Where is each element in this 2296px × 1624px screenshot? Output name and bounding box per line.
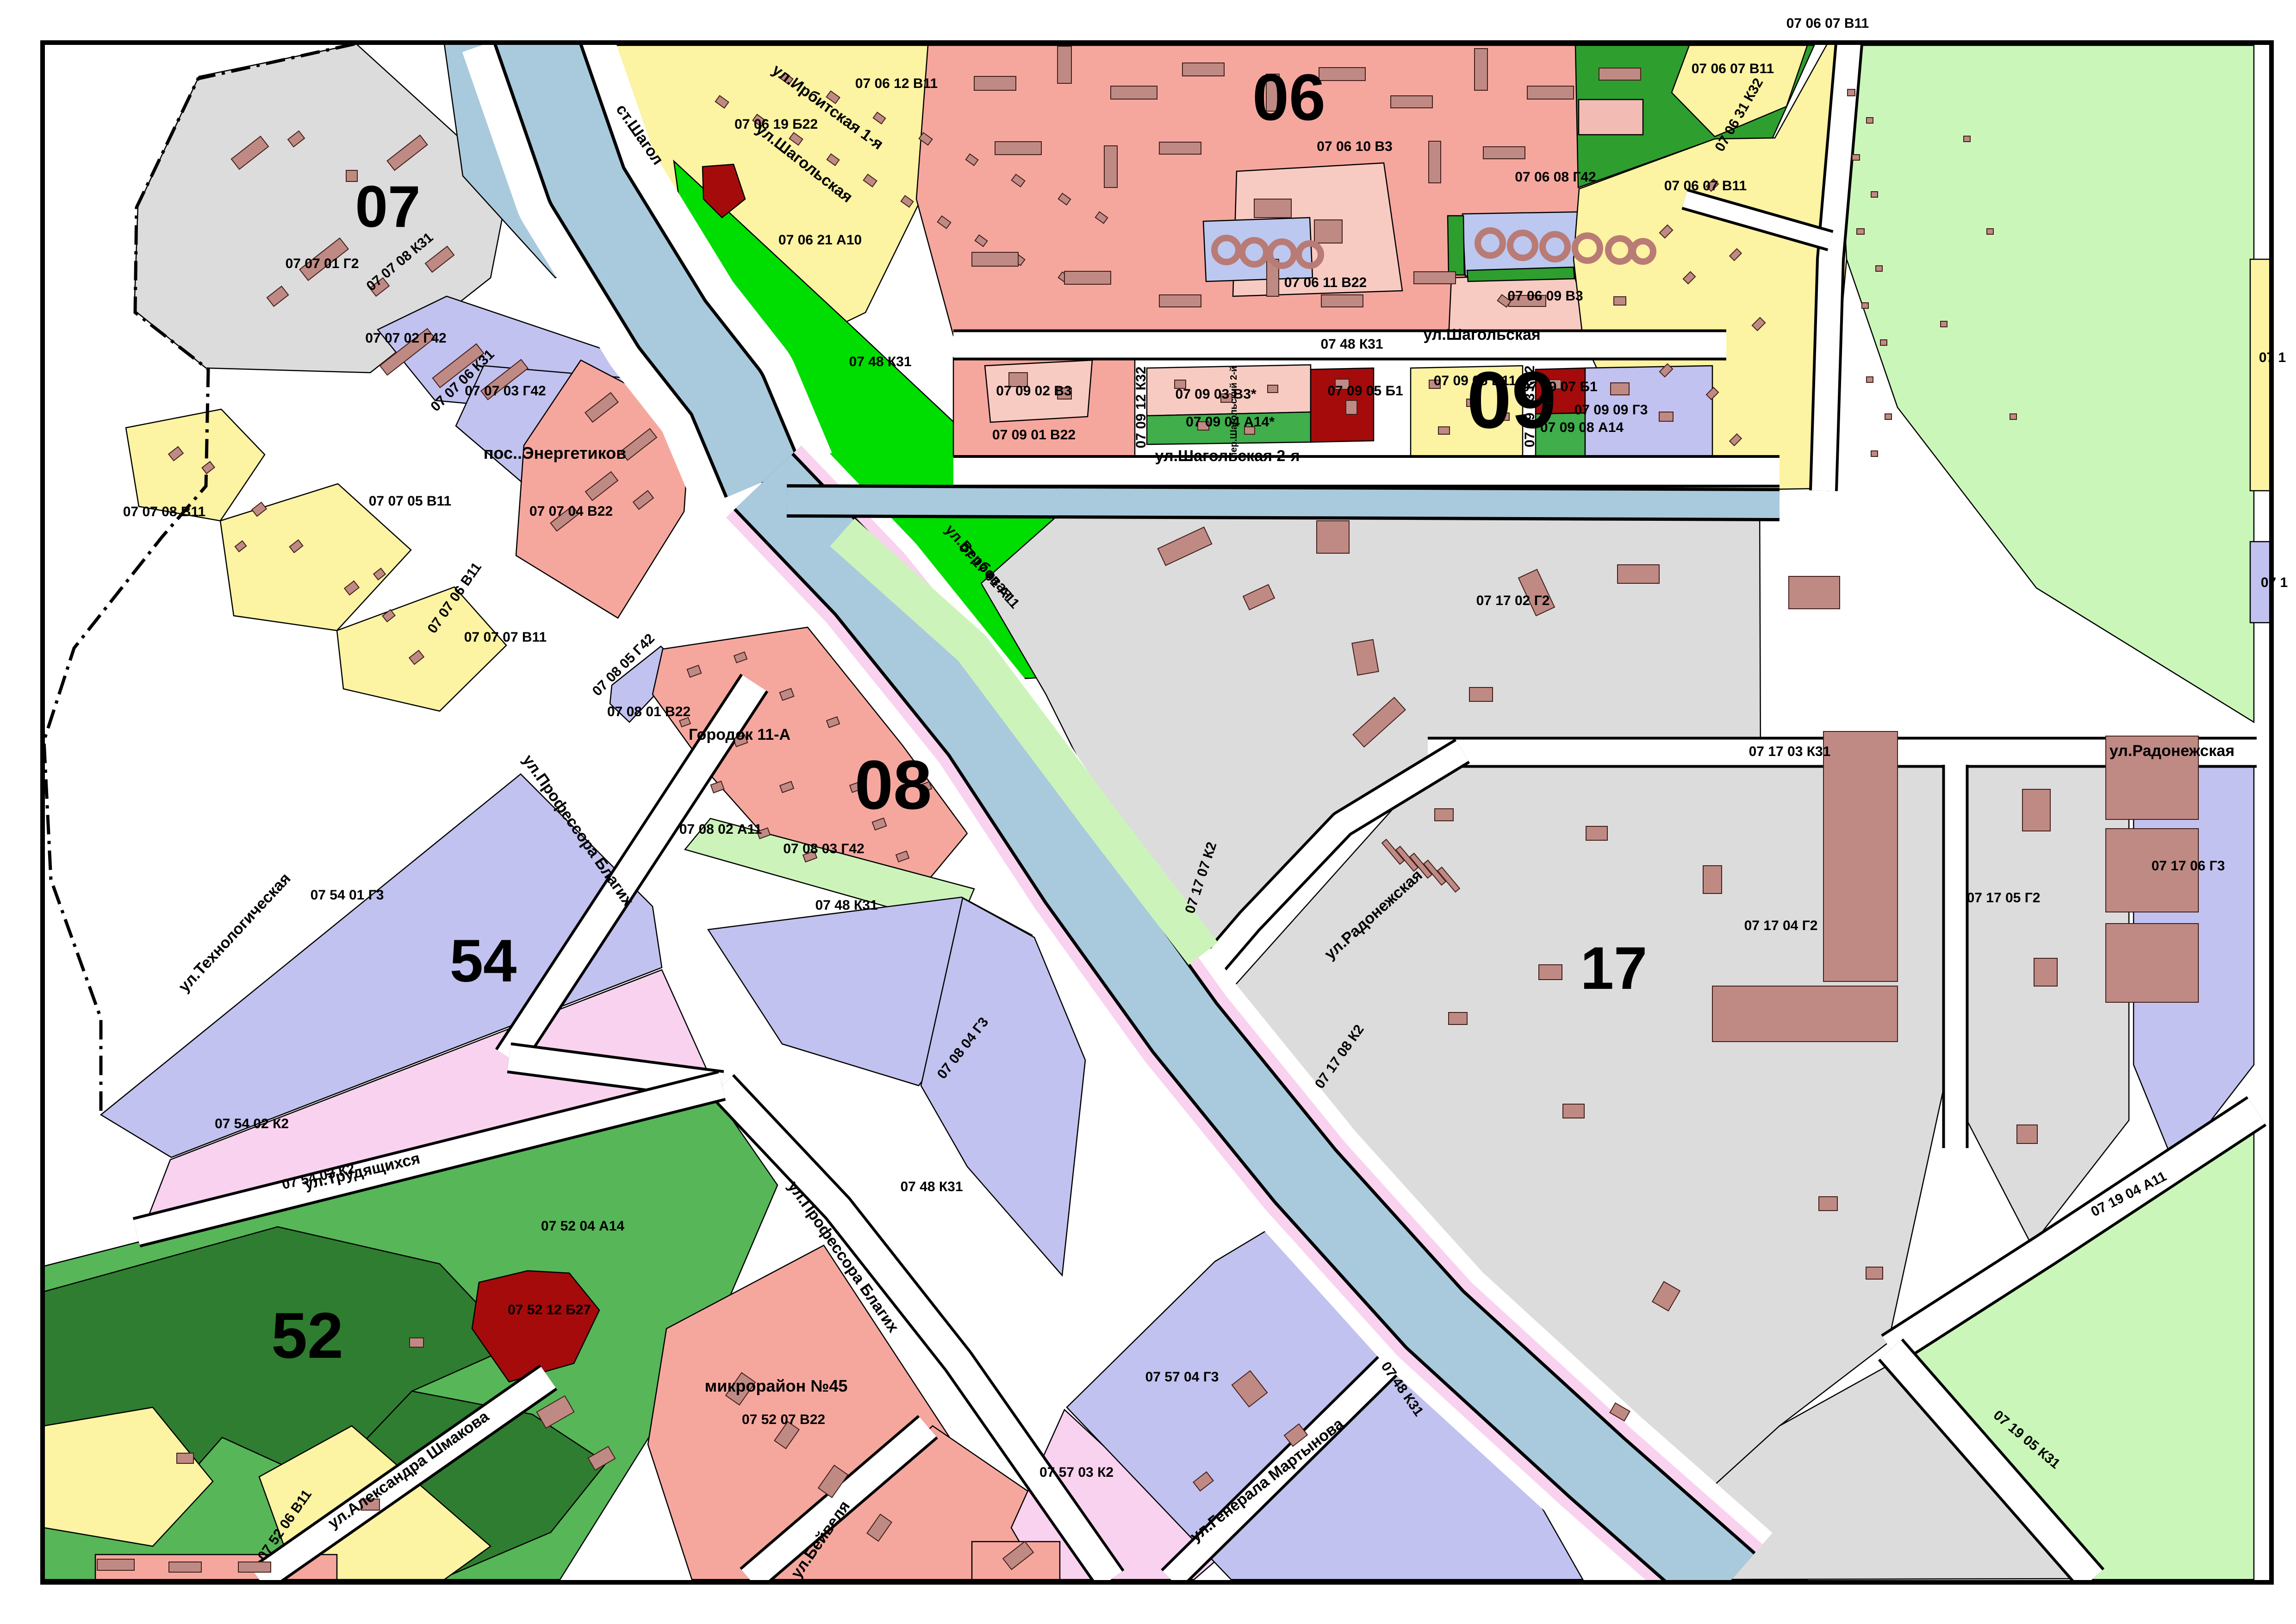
- building: [1618, 565, 1659, 583]
- building: [1159, 142, 1201, 154]
- building: [1703, 866, 1722, 893]
- building: [1885, 414, 1892, 419]
- zone-label-07-09-04: 07 09 04 А14*: [1186, 414, 1275, 430]
- zone-label-07-52-07: 07 52 07 В22: [742, 1412, 825, 1427]
- map-canvas: 07060908175452ст.Шаголул.Ирбитская 1-яул…: [0, 0, 2296, 1624]
- building: [1964, 136, 1970, 142]
- building: [1611, 383, 1629, 395]
- zone-label-07-48-k31-b: 07 48 К31: [849, 354, 911, 369]
- building: [1111, 86, 1157, 99]
- building: [1823, 731, 1898, 981]
- zone-label-07-17-03: 07 17 03 К31: [1749, 744, 1831, 759]
- zone-label-07-54-01: 07 54 01 Г3: [311, 887, 384, 903]
- place-label-pos-energetikov: пос..Энергетиков: [484, 443, 627, 462]
- zone-label-07-07-02: 07 07 02 Г42: [365, 331, 447, 346]
- zone-label-07-48-k31-e: 07 48 К31: [900, 1179, 963, 1194]
- street-label-shagolskaya-b: ул.Шагольская: [1423, 326, 1540, 344]
- zone-label-07-54-02: 07 54 02 К2: [215, 1116, 289, 1131]
- building: [97, 1559, 134, 1570]
- building: [1391, 96, 1432, 108]
- zone-label-07-09-06: 07 09 06 В11: [1434, 373, 1517, 388]
- zone-label-07-48-k31-a: 07 48 К31: [1320, 337, 1383, 352]
- zone-label-07-17-02: 07 17 02 Г2: [1476, 593, 1550, 608]
- zone-label-07-06-10: 07 06 10 В3: [1317, 139, 1392, 154]
- zone-label-07-06-07-c: 07 06 07 В11: [1664, 178, 1747, 194]
- building: [974, 76, 1016, 90]
- zone-label-07-57-03: 07 57 03 К2: [1039, 1465, 1114, 1480]
- building: [995, 142, 1041, 155]
- building: [2034, 958, 2057, 986]
- zone-label-edge-partial-a: 07 1: [2259, 350, 2286, 365]
- canal: [787, 501, 1780, 505]
- building: [1857, 229, 1864, 234]
- page-margin-1: [0, 1582, 2296, 1624]
- zone-label-07-09-02: 07 09 02 В3: [996, 383, 1071, 399]
- building: [1438, 427, 1450, 434]
- building: [1880, 340, 1887, 345]
- building: [177, 1453, 193, 1463]
- building: [1064, 271, 1111, 284]
- building: [2106, 924, 2198, 1002]
- zone-label-07-07-08: 07 07 08 В11: [123, 504, 206, 519]
- street-label-per-shagolskiy-2: пер.Шагольский 2-й: [1229, 366, 1239, 458]
- building: [1941, 321, 1947, 327]
- building: [1317, 521, 1349, 553]
- zone-label-07-48-k31-c: 07 48 К31: [815, 898, 877, 913]
- building: [1268, 385, 1278, 393]
- building: [1475, 49, 1487, 90]
- zone-label-07-06-09: 07 06 09 В3: [1507, 288, 1583, 304]
- zone-label-07-09-03: 07 09 03 В3*: [1175, 387, 1256, 402]
- zone-label-07-07-07: 07 07 07 В11: [464, 630, 547, 645]
- zone-label-07-06-21: 07 06 21 А10: [778, 232, 862, 248]
- building: [1321, 295, 1363, 307]
- building: [238, 1562, 271, 1572]
- zone-label-07-17-05: 07 17 05 Г2: [1967, 890, 2041, 906]
- zone-label-07-09-08: 07 09 08 А14: [1540, 420, 1624, 435]
- building: [1469, 687, 1493, 701]
- building: [1659, 412, 1673, 421]
- building: [1449, 1012, 1467, 1024]
- building: [1852, 155, 1860, 160]
- street-label-shagolskaya-2: ул.Шагольская 2-я: [1155, 447, 1300, 465]
- building: [1599, 68, 1641, 80]
- zone-label-07-09-13: 07 09 13 К32: [1522, 366, 1537, 448]
- zone-label-07-06-07-b: 07 06 07 В11: [1692, 61, 1774, 76]
- zone-label-07-06-12: 07 06 12 В11: [855, 76, 938, 91]
- zone-06-pink-rect[interactable]: [1579, 100, 1643, 135]
- zone-label-07-09-07: 07 09 07 Б1: [1522, 379, 1597, 394]
- building: [1254, 199, 1291, 218]
- building: [1483, 147, 1525, 159]
- building: [1876, 266, 1882, 271]
- zone-label-07-08-01: 07 08 01 В22: [607, 704, 691, 719]
- zone-label-edge-partial-b: 07 1: [2261, 575, 2288, 590]
- district-number-54: 54: [450, 927, 517, 994]
- building: [1527, 86, 1574, 99]
- building: [1862, 303, 1868, 308]
- building: [1058, 46, 1071, 83]
- zone-label-07-57-04: 07 57 04 Г3: [1145, 1369, 1219, 1385]
- zone-yellow-edge[interactable]: [2250, 259, 2271, 491]
- building: [2010, 414, 2016, 419]
- zone-label-07-09-01: 07 09 01 В22: [992, 427, 1076, 443]
- page-margin-0: [0, 0, 2296, 43]
- district-number-07: 07: [355, 174, 420, 239]
- zone-label-07-17-04: 07 17 04 Г2: [1744, 918, 1818, 933]
- building: [2017, 1125, 2037, 1143]
- zone-label-07-07-01: 07 07 01 Г2: [286, 256, 359, 271]
- building: [1435, 809, 1453, 821]
- building: [1871, 192, 1878, 197]
- building: [1866, 1267, 1883, 1279]
- zone-label-07-08-02: 07 08 02 А11: [679, 822, 762, 837]
- building: [1867, 377, 1873, 382]
- zone-label-07-09-09: 07 09 09 Г3: [1574, 402, 1648, 418]
- district-number-08: 08: [855, 746, 932, 824]
- building: [2022, 789, 2050, 831]
- page-margin-2: [0, 0, 43, 1624]
- zone-label-07-06-08: 07 06 08 Г42: [1515, 169, 1596, 185]
- zoning-map: 07060908175452ст.Шаголул.Ирбитская 1-яул…: [0, 0, 2296, 1624]
- building: [1987, 229, 1993, 234]
- zone-label-07-06-11: 07 06 11 В22: [1284, 275, 1367, 290]
- zone-label-07-09-12: 07 09 12 К32: [1133, 367, 1149, 449]
- building: [1319, 68, 1365, 81]
- building: [1182, 63, 1224, 76]
- building: [1159, 295, 1201, 307]
- zone-label-07-07-05: 07 07 05 В11: [369, 493, 452, 509]
- district-number-52: 52: [271, 1299, 343, 1372]
- zone-label-07-17-06: 07 17 06 Г3: [2152, 858, 2225, 874]
- place-label-mikroraion-45: микрорайон №45: [705, 1376, 848, 1395]
- zone-label-07-52-12: 07 52 12 Б27: [508, 1302, 591, 1318]
- building: [1789, 576, 1840, 609]
- building: [1104, 146, 1117, 187]
- zone-06-green-a[interactable]: [1448, 216, 1464, 275]
- building: [1819, 1197, 1837, 1211]
- building: [169, 1562, 201, 1572]
- building: [1586, 826, 1607, 840]
- zone-label-07-09-05: 07 09 05 Б1: [1327, 383, 1403, 399]
- building: [1848, 89, 1855, 96]
- district-number-06: 06: [1252, 61, 1325, 134]
- building: [1429, 141, 1441, 183]
- building: [1614, 297, 1626, 305]
- zone-label-07-07-04: 07 07 04 В22: [529, 504, 613, 519]
- zone-label-07-52-04: 07 52 04 А14: [541, 1218, 624, 1234]
- building: [1539, 965, 1562, 980]
- building: [1871, 451, 1878, 456]
- zone-label-07-06-19: 07 06 19 Б22: [734, 117, 818, 132]
- building: [1346, 400, 1357, 414]
- building: [1867, 118, 1873, 123]
- zone-label-07-07-03: 07 07 03 Г42: [465, 383, 546, 399]
- page-margin-3: [2271, 0, 2296, 1624]
- building: [1314, 220, 1342, 243]
- place-label-gorodok-11a: Городок 11-А: [689, 726, 790, 743]
- district-number-17: 17: [1580, 934, 1648, 1002]
- building: [410, 1338, 423, 1347]
- zone-label-07-08-03: 07 08 03 Г42: [783, 841, 865, 856]
- building: [1414, 272, 1456, 284]
- building: [1712, 986, 1898, 1042]
- building: [972, 252, 1018, 266]
- zone-label-07-06-07-a: 07 06 07 В11: [1786, 16, 1869, 31]
- street-label-radonezhskaya-a: ул.Радонежская: [2109, 742, 2234, 760]
- building: [1563, 1104, 1584, 1118]
